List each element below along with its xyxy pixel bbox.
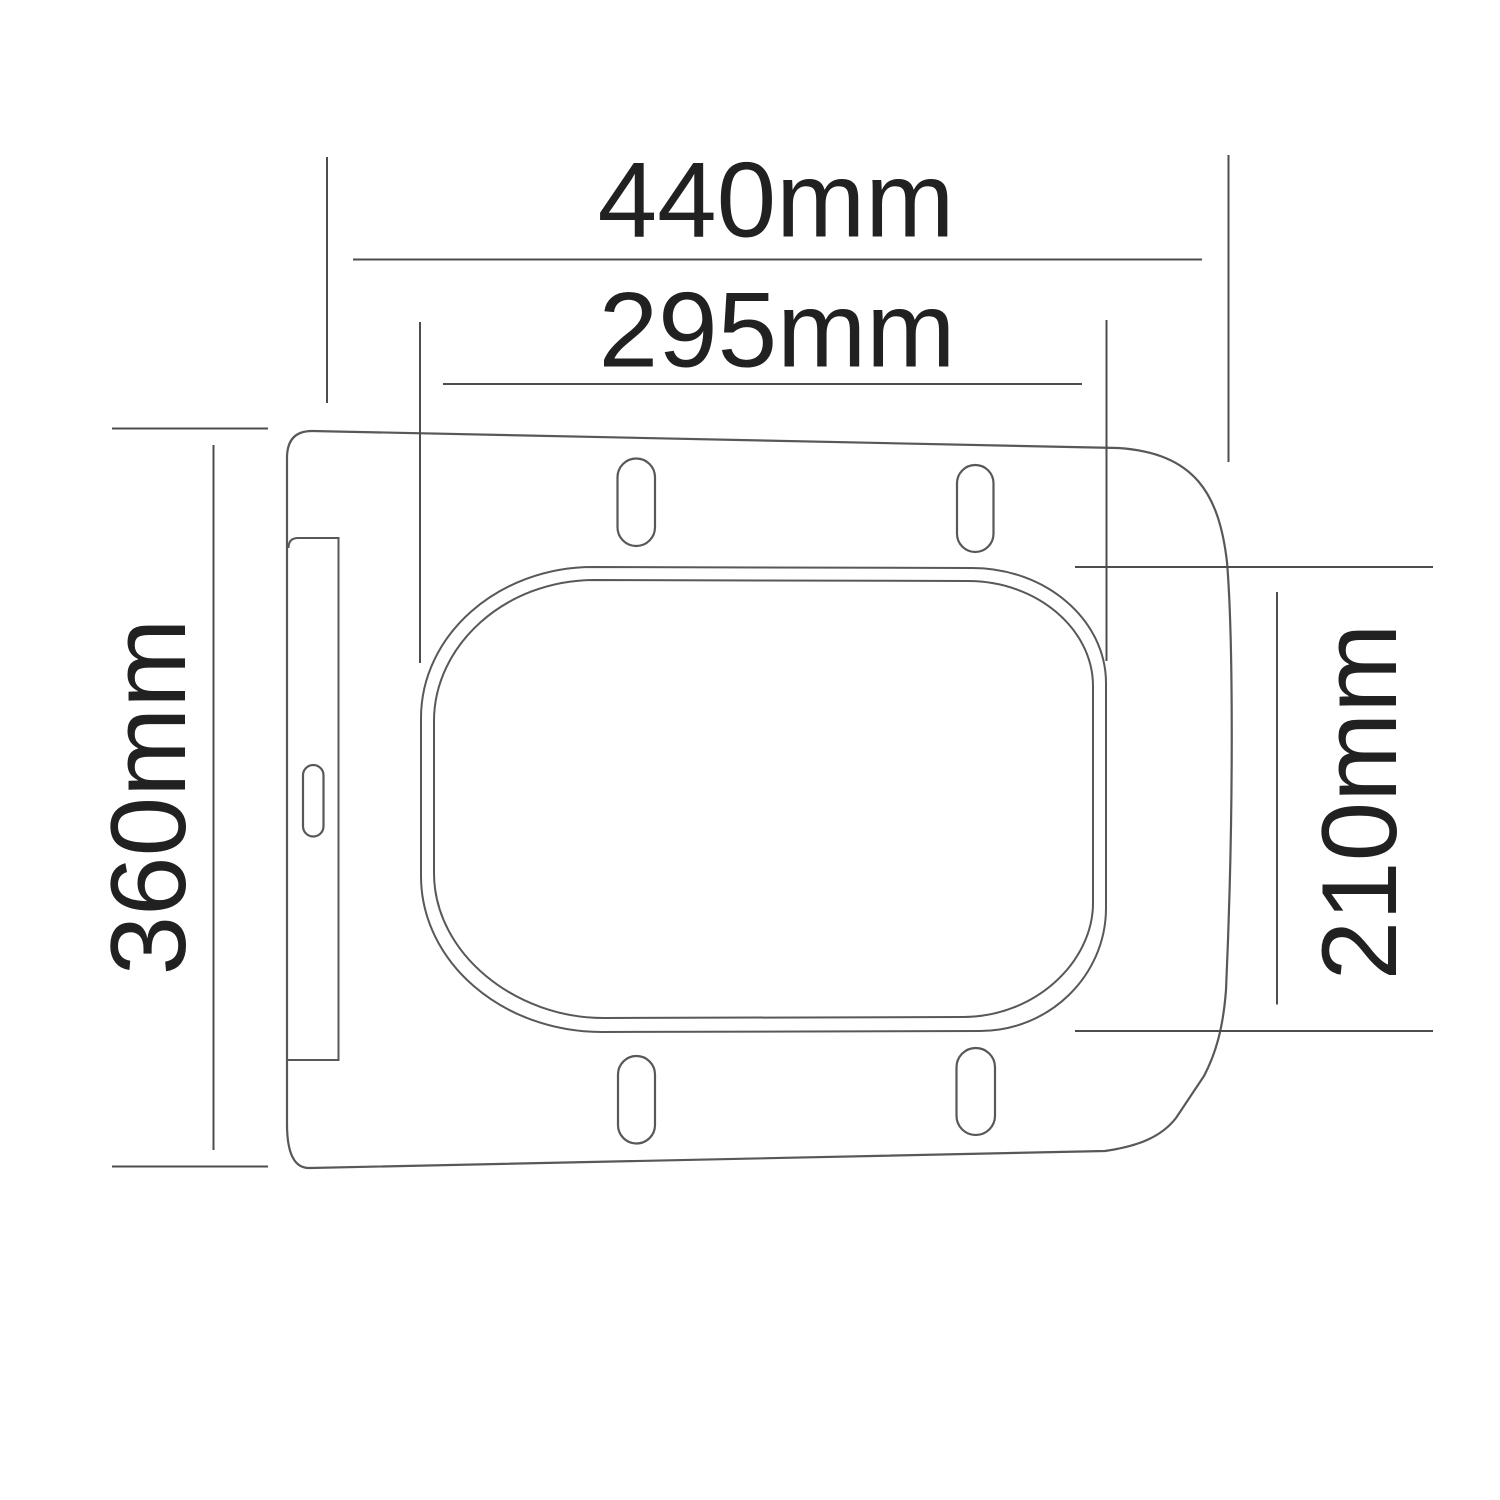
svg-text:360mm: 360mm bbox=[88, 619, 208, 976]
svg-text:210mm: 210mm bbox=[1299, 624, 1419, 981]
svg-text:440mm: 440mm bbox=[598, 140, 955, 260]
svg-text:295mm: 295mm bbox=[599, 270, 956, 390]
